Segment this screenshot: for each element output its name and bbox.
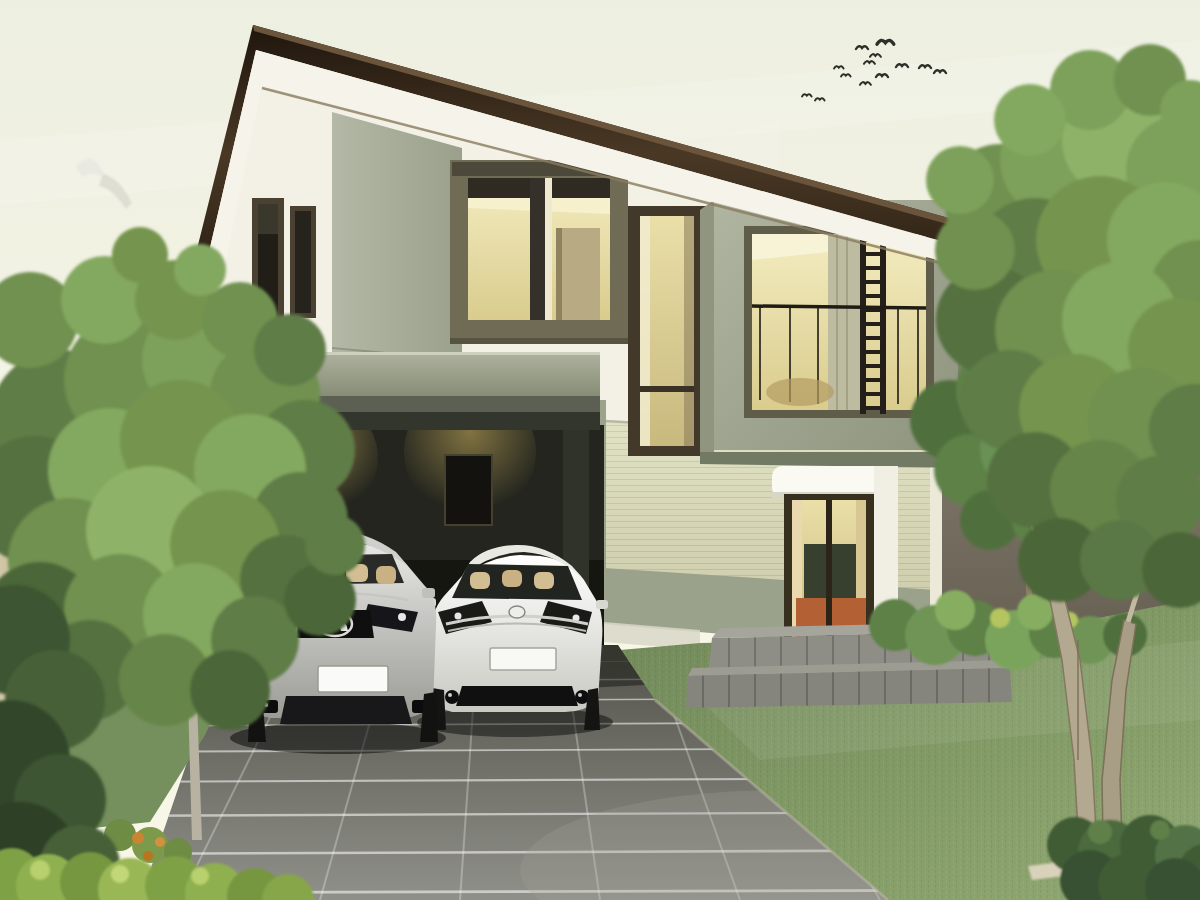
rendering-canvas: 3D architectural rendering of a modern t…	[0, 0, 1200, 900]
main-lit-window	[450, 160, 628, 344]
scene	[0, 0, 1200, 900]
tall-window	[628, 206, 706, 456]
